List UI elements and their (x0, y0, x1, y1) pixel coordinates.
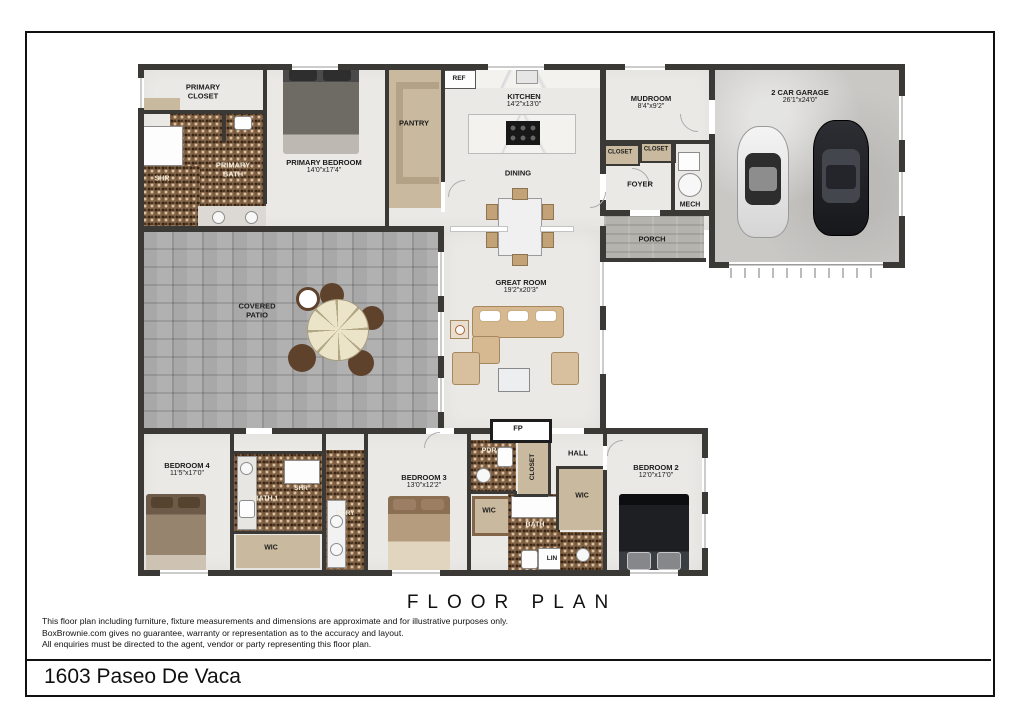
garage-apron (730, 268, 882, 278)
ref-label: REF (453, 75, 466, 83)
window (160, 570, 208, 576)
room-label-covered-patio: COVERED PATIO (229, 302, 285, 321)
room-label-hall: HALL (568, 448, 588, 457)
room-label-dining: DINING (505, 168, 531, 177)
room-label-shr2: SHR (294, 485, 308, 493)
wall (600, 226, 606, 432)
window (899, 172, 905, 216)
dining-chair (512, 188, 528, 200)
wall (600, 64, 606, 174)
window (438, 312, 444, 356)
floor-wic-bed4 (236, 535, 320, 568)
sofa (472, 306, 564, 338)
wall (556, 466, 603, 469)
room-label-closet-a: CLOSET (608, 149, 632, 157)
window (292, 64, 338, 70)
room-label-great-room: GREAT ROOM19'2"x20'3" (495, 278, 546, 296)
wall (222, 112, 226, 142)
wall (899, 64, 905, 268)
room-label-pantry: PANTRY (399, 118, 429, 127)
room-label-primary-bedroom: PRIMARY BEDROOM14'0"x17'4" (286, 158, 361, 176)
patio-door-gap (540, 226, 574, 232)
address-bar: 1603 Paseo De Vaca (25, 659, 991, 695)
water-heater-icon (678, 173, 702, 197)
window (630, 570, 678, 576)
window (488, 64, 544, 70)
kitchen-sink-icon (516, 70, 538, 84)
room-label-pdr: PDR (482, 448, 497, 457)
vanity-sink-icon (245, 211, 258, 224)
bedroom3-bed (388, 496, 450, 572)
dining-chair (542, 232, 554, 248)
room-label-bath1: BATH 1 (254, 496, 279, 505)
wall (364, 432, 368, 572)
window (625, 64, 665, 70)
wall (138, 226, 144, 434)
door-gap (552, 428, 584, 434)
vanity-sink-icon (212, 211, 225, 224)
wall (556, 466, 559, 530)
room-label-ldry: L'DRY (336, 510, 355, 518)
window (600, 262, 606, 306)
room-label-wic-bed3: WIC (482, 508, 496, 517)
floor-plan-title: FLOOR PLAN (407, 592, 617, 614)
disclaimer-line: All enquiries must be directed to the ag… (42, 639, 508, 651)
bath2-tub (511, 496, 557, 518)
wall (604, 258, 706, 262)
window (600, 330, 606, 374)
wall (140, 110, 267, 114)
wall (138, 428, 144, 576)
armchair (452, 352, 480, 385)
wall (709, 64, 905, 70)
black-car (813, 120, 869, 236)
patio-umbrella (308, 300, 368, 360)
floor-covered-patio (142, 230, 440, 430)
room-label-foyer: FOYER (627, 179, 653, 188)
primary-tub (141, 126, 183, 166)
room-label-lin: LIN (547, 555, 557, 563)
white-car (737, 126, 789, 238)
front-door-gap (630, 210, 660, 216)
room-label-primary-bath: PRIMARY BATH (206, 161, 260, 180)
window (702, 458, 708, 492)
wall (138, 226, 442, 232)
toilet-icon (521, 550, 538, 569)
wall (138, 428, 708, 434)
garage-door-gap (709, 100, 715, 134)
disclaimer-line: BoxBrownie.com gives no guarantee, warra… (42, 628, 508, 640)
window (438, 378, 444, 412)
room-label-primary-shr: SHR (155, 176, 170, 185)
room-label-bedroom3: BEDROOM 313'0"x12'2" (401, 473, 446, 491)
toilet-icon (497, 447, 513, 467)
dining-chair (542, 204, 554, 220)
patio-door-gap (450, 226, 508, 232)
pantry-shelves (396, 82, 439, 184)
wall (709, 64, 715, 268)
mech-unit (678, 152, 700, 171)
dryer-door-icon (330, 543, 343, 556)
window (438, 252, 444, 296)
room-label-mudroom: MUDROOM8'4"x9'2" (631, 94, 671, 112)
side-table (450, 320, 469, 339)
cooktop-icon (506, 121, 540, 145)
door-gap (426, 428, 454, 434)
wall (671, 140, 675, 216)
door-gap (246, 428, 272, 434)
room-label-porch: PORCH (638, 234, 665, 243)
window (138, 78, 144, 108)
disclaimer-line: This floor plan including furniture, fix… (42, 616, 508, 628)
wall (604, 140, 715, 144)
bedroom4-bed (146, 494, 206, 572)
disclaimer-text: This floor plan including furniture, fix… (42, 616, 508, 651)
armchair (551, 352, 579, 385)
primary-bed (283, 66, 359, 154)
room-label-closet-b: CLOSET (644, 146, 668, 154)
wall (548, 440, 551, 496)
patio-chair (288, 344, 316, 372)
wall (232, 531, 322, 534)
wall (322, 432, 326, 572)
room-label-bedroom2: BEDROOM 212'0"x17'0" (633, 463, 678, 481)
pdr-sink-icon (476, 468, 491, 483)
room-label-wic-bed2: WIC (575, 493, 589, 502)
room-label-garage: 2 CAR GARAGE26'1"x24'0" (771, 88, 829, 106)
property-address: 1603 Paseo De Vaca (44, 665, 241, 689)
room-label-kitchen: KITCHEN14'2"x13'0" (507, 92, 542, 110)
floor-primary-shower (140, 166, 200, 230)
window (392, 570, 440, 576)
door-gap (603, 446, 607, 470)
vanity-sink-icon (240, 462, 253, 475)
coffee-table (498, 368, 530, 392)
room-label-bath2: BATH (526, 522, 545, 531)
window (702, 514, 708, 548)
dining-chair (486, 232, 498, 248)
wall (263, 64, 267, 204)
wall (702, 428, 708, 576)
room-label-closet-hall: CLOSET (529, 454, 537, 480)
wall (514, 494, 548, 497)
room-label-primary-closet: PRIMARY CLOSET (172, 83, 234, 102)
dining-chair (512, 254, 528, 266)
toilet-icon (239, 500, 255, 518)
fireplace-label: FP (513, 423, 523, 432)
vanity-sink-icon (576, 548, 590, 562)
dining-chair (486, 204, 498, 220)
garage-door-opening (729, 262, 883, 268)
wall (467, 491, 517, 494)
wall (385, 64, 389, 230)
toilet-icon (234, 116, 252, 130)
wall (232, 451, 322, 454)
room-label-mech: MECH (680, 202, 701, 211)
room-label-wic-bed4: WIC (264, 545, 278, 554)
wall (441, 64, 445, 182)
floor-plan-page: PRIMARY CLOSET SHR PRIMARY BATH PRIMARY … (0, 0, 1024, 724)
room-label-bedroom4: BEDROOM 411'5"x17'0" (164, 461, 209, 479)
wall (467, 432, 471, 572)
door-gap (441, 182, 445, 212)
bedroom2-bed (619, 494, 689, 572)
bath1-shower-pan (284, 460, 320, 484)
window (899, 96, 905, 140)
